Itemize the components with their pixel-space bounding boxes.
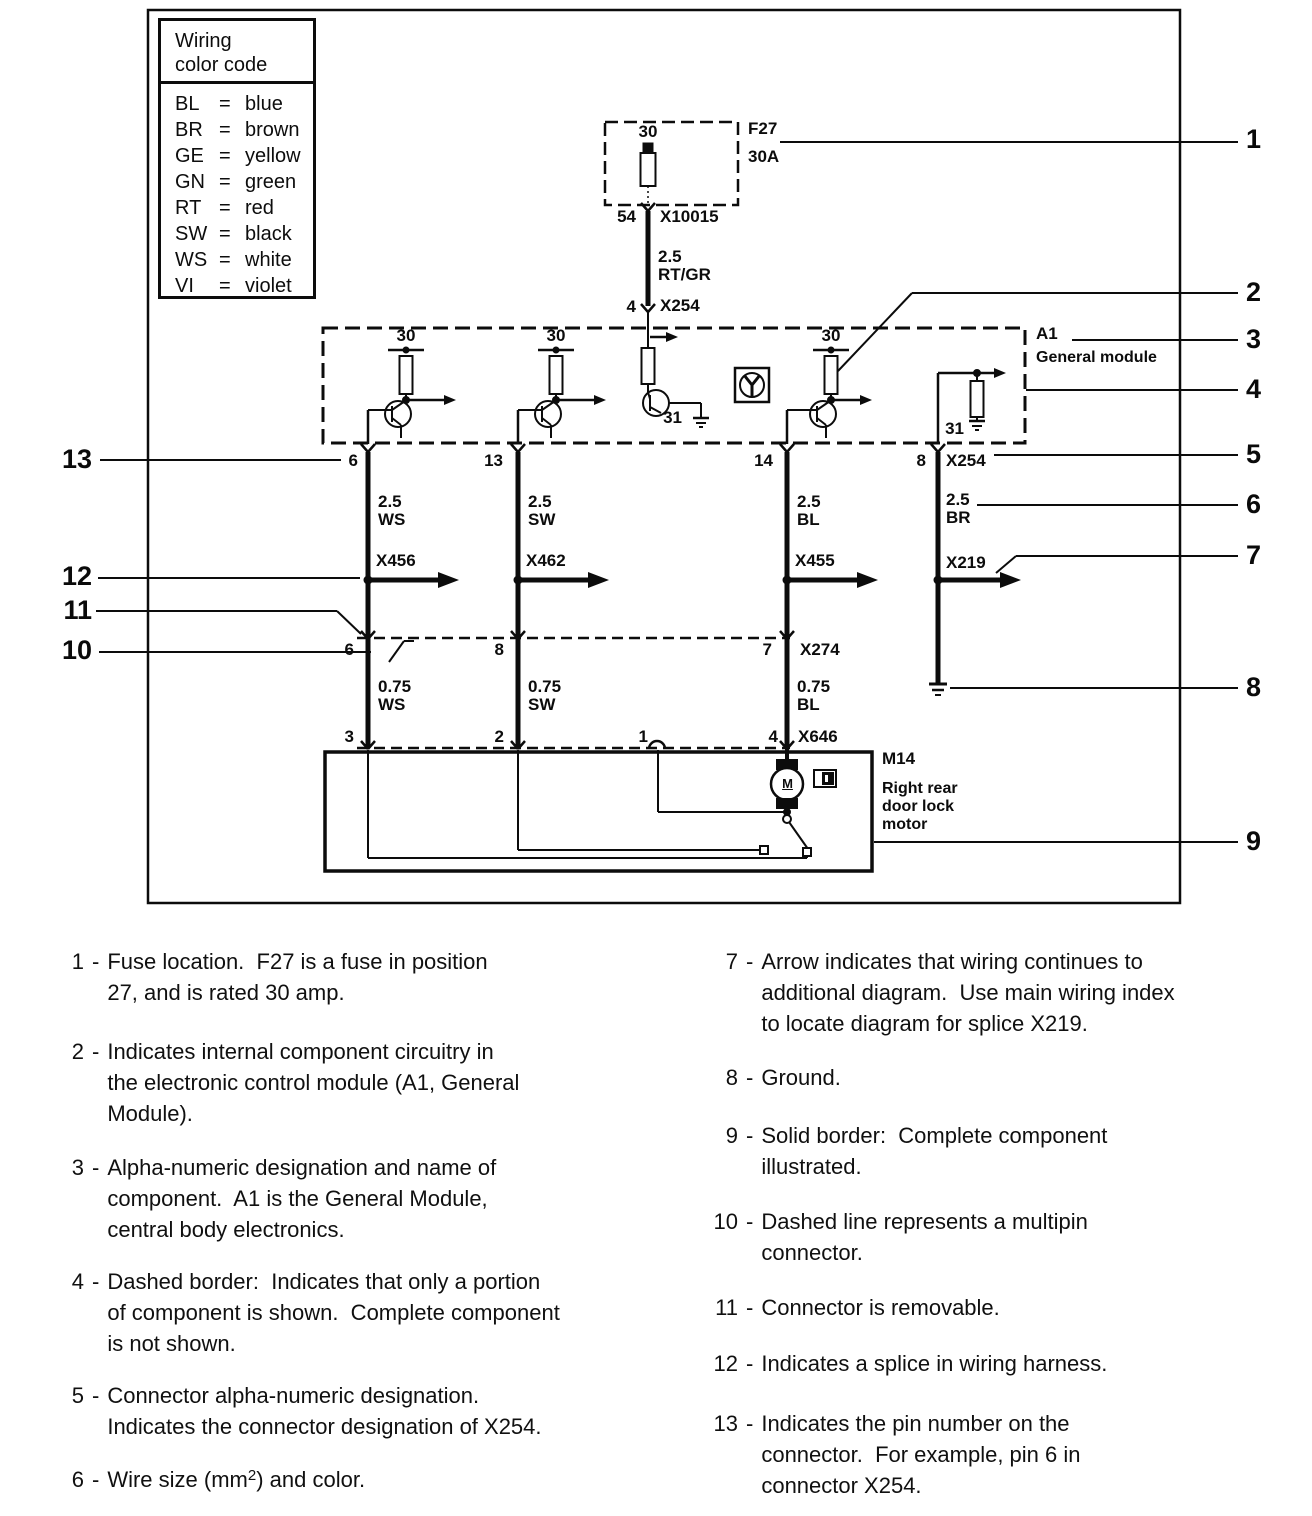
callout-line-7: [996, 556, 1238, 573]
callout-number-9: 9: [1246, 828, 1261, 855]
color-code: GE: [175, 143, 219, 169]
scanned-wiring-legend-page: Wiring color code BL=blue BR=brown GE=ye…: [0, 0, 1312, 1516]
ground-31-label: 31: [648, 408, 682, 428]
ground-symbol-internal-e: [969, 421, 985, 430]
connector-x274-label: X274: [800, 640, 840, 660]
connector-x254-pins: [361, 444, 945, 452]
wire-size-label: 2.5: [528, 492, 552, 512]
module-name-label: General module: [1036, 349, 1157, 367]
connector-x10015-label: X10015: [660, 207, 719, 227]
note-4: 4- Dashed border: Indicates that only a …: [62, 1266, 560, 1359]
note-6: 6- Wire size (mm2) and color.: [62, 1464, 365, 1495]
callout-number-2: 2: [1246, 279, 1261, 306]
fuse-symbol: [643, 143, 653, 153]
splice-arrows: [364, 572, 1021, 588]
callout-number-3: 3: [1246, 326, 1261, 353]
callout-number-5: 5: [1246, 441, 1261, 468]
wire-size-label: 2.5: [946, 490, 970, 510]
note-11: 11- Connector is removable.: [704, 1292, 1000, 1323]
wire-color-label: BL: [797, 695, 820, 715]
note-3: 3- Alpha-numeric designation and name of…: [62, 1152, 496, 1245]
note-13: 13- Indicates the pin number on theconne…: [704, 1408, 1081, 1501]
color-code: BL: [175, 91, 219, 117]
pin-number-label: 1: [616, 727, 648, 747]
wire-size-label: 0.75: [528, 677, 561, 697]
relay-icon: [735, 368, 769, 402]
wire-size-label: 0.75: [378, 677, 411, 697]
note-9: 9- Solid border: Complete componentillus…: [704, 1120, 1107, 1182]
callout-number-12: 12: [48, 563, 92, 590]
wire-color-label: SW: [528, 695, 555, 715]
motor-name-label: motor: [882, 816, 927, 834]
wire-size-label: 2.5: [378, 492, 402, 512]
legend-row: GE=yellow: [175, 143, 313, 169]
color-name: brown: [245, 117, 313, 143]
pin-number-label: 8: [894, 451, 926, 471]
color-code: VI: [175, 273, 219, 299]
splice-label: X219: [946, 553, 986, 573]
wire-color-label: SW: [528, 510, 555, 530]
ground-symbol-internal-c: [693, 418, 709, 427]
ground-symbol: [929, 684, 947, 695]
legend-row: BR=brown: [175, 117, 313, 143]
connector-x646: [357, 741, 794, 749]
feed-wire-size-label: 2.5: [658, 247, 682, 267]
connector-x646-label: X646: [798, 727, 838, 747]
color-code: GN: [175, 169, 219, 195]
pin-number-label: 14: [733, 451, 773, 471]
splice-label: X455: [795, 551, 835, 571]
lower-wires: [368, 638, 787, 748]
splice-label: X462: [526, 551, 566, 571]
note-10: 10- Dashed line represents a multipincon…: [704, 1206, 1088, 1268]
wire-size-label: 0.75: [797, 677, 830, 697]
color-code: RT: [175, 195, 219, 221]
color-name: black: [245, 221, 313, 247]
callout-line-11: [96, 611, 361, 634]
wire-size-label: 2.5: [797, 492, 821, 512]
module-id-label: A1: [1036, 324, 1058, 344]
pin-number-label: 7: [740, 640, 772, 660]
color-name: green: [245, 169, 313, 195]
motor-switch-circuit: [368, 750, 811, 858]
module-circuit-b: [518, 348, 606, 445]
wire-color-label: WS: [378, 510, 405, 530]
legend-row: GN=green: [175, 169, 313, 195]
legend-row: BL=blue: [175, 91, 313, 117]
removable-connector-flag: [389, 641, 414, 662]
color-name: white: [245, 247, 313, 273]
pin-number-label: 13: [463, 451, 503, 471]
ground-31-label: 31: [928, 419, 964, 439]
legend-row: WS=white: [175, 247, 313, 273]
color-code: BR: [175, 117, 219, 143]
connector-x274: [357, 631, 794, 662]
motor-id-label: M14: [882, 749, 915, 769]
feed-wire: [641, 203, 655, 348]
bus-30-label: 30: [536, 326, 576, 346]
pin-number-label: 4: [746, 727, 778, 747]
mm2-superscript: 2: [248, 1467, 256, 1484]
color-name: violet: [245, 273, 313, 299]
connector-x254-label: X254: [946, 451, 986, 471]
feed-wire-color-label: RT/GR: [658, 265, 711, 285]
motor-name-label: door lock: [882, 798, 954, 816]
note-1: 1- Fuse location. F27 is a fuse in posit…: [62, 946, 488, 1008]
legend-row: VI=violet: [175, 273, 313, 299]
color-code: SW: [175, 221, 219, 247]
legend-row: RT=red: [175, 195, 313, 221]
pin-number-label: 2: [472, 727, 504, 747]
fuse-id-label: F27: [748, 119, 777, 139]
fuse-bus-label: 30: [630, 122, 666, 142]
fuse-box: [605, 122, 738, 205]
callout-number-8: 8: [1246, 674, 1261, 701]
pin-number-label: 6: [326, 451, 358, 471]
pin-number-label: 8: [472, 640, 504, 660]
color-name: yellow: [245, 143, 313, 169]
connector-x254-top-label: X254: [660, 296, 700, 316]
note-8: 8- Ground.: [704, 1062, 841, 1093]
callout-number-11: 11: [48, 597, 92, 624]
color-name: red: [245, 195, 313, 221]
callout-number-4: 4: [1246, 376, 1261, 403]
legend-title: Wiring color code: [161, 21, 313, 84]
callout-number-1: 1: [1246, 126, 1261, 153]
fuse-rating-label: 30A: [748, 147, 779, 167]
motor-name-label: Right rear: [882, 780, 958, 798]
wiring-color-code-box: Wiring color code BL=blue BR=brown GE=ye…: [158, 18, 316, 299]
pin-54-label: 54: [594, 207, 636, 227]
callout-number-10: 10: [48, 637, 92, 664]
pin-number-label: 3: [322, 727, 354, 747]
module-circuit-a: [368, 348, 456, 445]
pin-number-label: 6: [322, 640, 354, 660]
upper-wires: [368, 452, 938, 684]
note-12: 12- Indicates a splice in wiring harness…: [704, 1348, 1107, 1379]
motor-m-letter: M: [780, 776, 795, 791]
wire-color-label: WS: [378, 695, 405, 715]
callout-number-13: 13: [48, 446, 92, 473]
note-7: 7- Arrow indicates that wiring continues…: [704, 946, 1175, 1039]
note-5: 5- Connector alpha-numeric designation.I…: [62, 1380, 542, 1442]
legend-row: SW=black: [175, 221, 313, 247]
pin-4-label: 4: [594, 297, 636, 317]
wire-color-label: BL: [797, 510, 820, 530]
callout-number-7: 7: [1246, 542, 1261, 569]
note-2: 2- Indicates internal component circuitr…: [62, 1036, 519, 1129]
bus-30-label: 30: [386, 326, 426, 346]
bus-30-label: 30: [811, 326, 851, 346]
color-code: WS: [175, 247, 219, 273]
module-circuit-d: [787, 348, 872, 445]
wire-color-label: BR: [946, 508, 971, 528]
color-name: blue: [245, 91, 313, 117]
splice-label: X456: [376, 551, 416, 571]
callout-number-6: 6: [1246, 491, 1261, 518]
lock-position-icon: [814, 770, 836, 787]
